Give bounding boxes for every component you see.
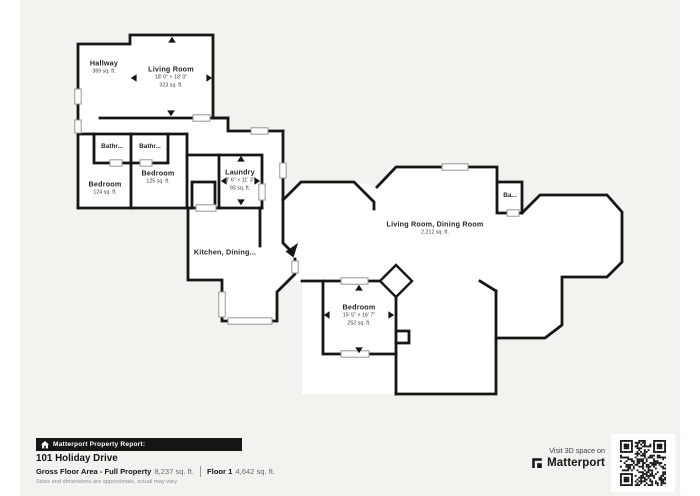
room-fills (78, 35, 622, 394)
room-dims-living-room: 18' 0" × 18' 0" (155, 75, 187, 80)
room-label-laundry: Laundry (225, 168, 255, 175)
room-area-laundry: 93 sq. ft. (230, 186, 250, 191)
room-area-hallway: 369 sq. ft. (92, 69, 115, 74)
floor1-label: Floor 1 (207, 467, 232, 476)
room-area-bedroom-1: 124 sq. ft. (93, 190, 116, 195)
room-label-bathroom-2: Bathr... (139, 144, 161, 150)
room-area-living-dining: 2,212 sq. ft. (421, 230, 449, 235)
gross-area-value: 8,237 sq. ft. (154, 467, 194, 476)
visit-3d-text: Visit 3D space on (549, 446, 605, 455)
gross-area-label: Gross Floor Area - Full Property (36, 467, 151, 476)
room-dims-laundry: 8' 6" × 11' 3" (225, 178, 254, 183)
property-address: 101 Holiday Drive (36, 453, 118, 464)
report-banner: Matterport Property Report: (36, 438, 242, 451)
matterport-brand-text: Matterport (547, 457, 605, 469)
room-label-living-dining: Living Room, Dining Room (386, 220, 483, 227)
room-label-bath-small: Ba... (503, 193, 517, 199)
house-icon (41, 441, 49, 449)
room-label-hallway: Hallway (90, 59, 118, 66)
room-area-bedroom-2: 125 sq. ft. (146, 179, 169, 184)
banner-title: Matterport Property Report: (53, 441, 145, 448)
room-area-bedroom-3: 252 sq. ft. (347, 321, 370, 326)
stats-divider (200, 466, 201, 477)
room-label-bedroom-1: Bedroom (89, 180, 122, 187)
room-dims-bedroom-3: 15' 5" × 16' 7" (343, 313, 375, 318)
room-label-bathroom-1: Bathr... (101, 144, 123, 150)
room-label-kitchen-dining: Kitchen, Dining... (194, 248, 256, 255)
floor-area-stats: Gross Floor Area - Full Property 8,237 s… (36, 466, 275, 477)
room-label-bedroom-2: Bedroom (142, 169, 175, 176)
qr-code-pad (611, 434, 675, 492)
qr-code (620, 440, 666, 486)
matterport-brand: Matterport (531, 457, 605, 469)
room-label-bedroom-3: Bedroom (343, 303, 376, 310)
floor1-value: 4,642 sq. ft. (235, 467, 275, 476)
disclaimer-note: Sizes and dimensions are approximate, ac… (36, 479, 177, 485)
matterport-logo-icon (531, 457, 543, 469)
room-area-living-room: 323 sq. ft. (159, 83, 182, 88)
report-page: Hallway 369 sq. ft. Living Room 18' 0" ×… (0, 0, 700, 496)
room-label-living-room: Living Room (148, 65, 194, 72)
